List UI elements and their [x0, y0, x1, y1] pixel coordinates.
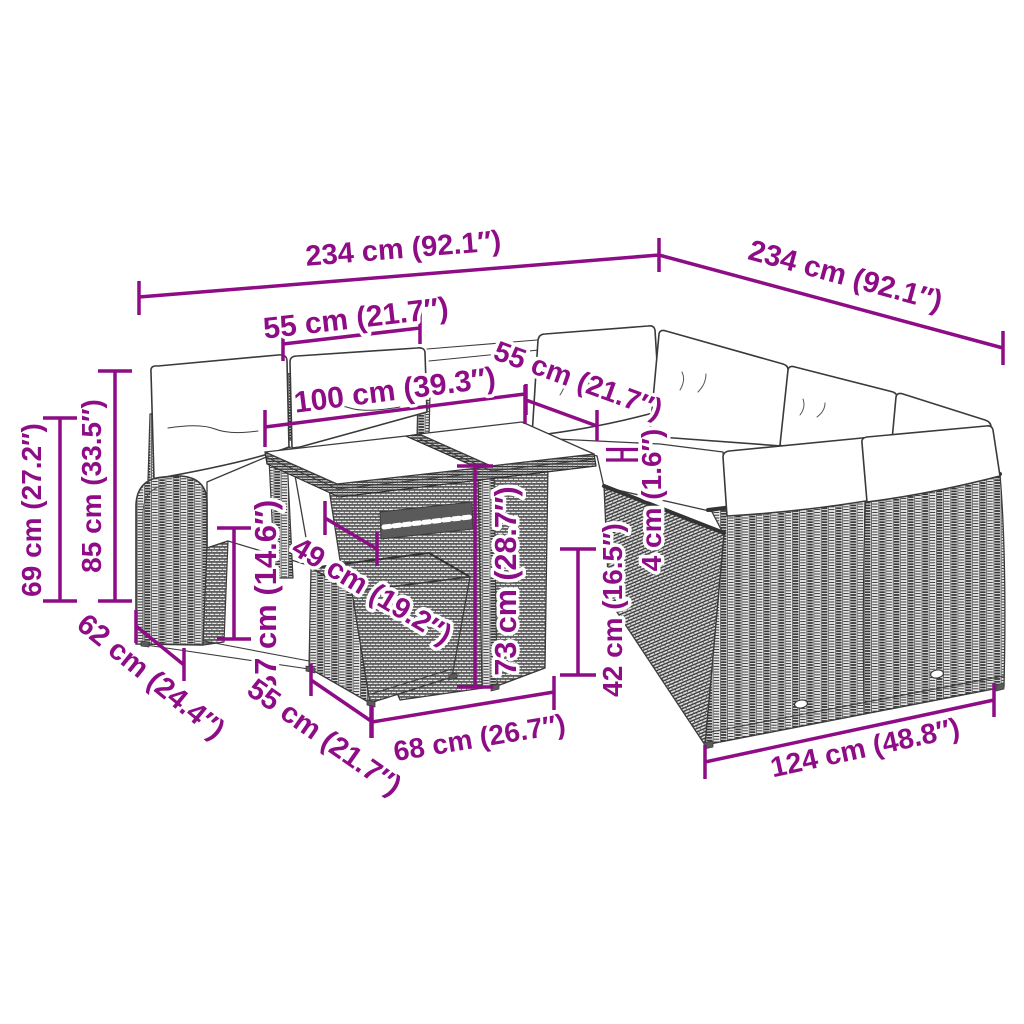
svg-text:37 cm (14.6″): 37 cm (14.6″) [248, 500, 283, 692]
svg-text:55 cm (21.7″): 55 cm (21.7″) [262, 291, 451, 345]
svg-text:4 cm (1.6″): 4 cm (1.6″) [636, 429, 667, 572]
svg-text:85 cm (33.5″): 85 cm (33.5″) [76, 399, 107, 573]
svg-text:68 cm (26.7″): 68 cm (26.7″) [391, 708, 567, 767]
svg-text:73 cm (28.7″): 73 cm (28.7″) [489, 486, 523, 675]
svg-text:234 cm (92.1″): 234 cm (92.1″) [304, 225, 502, 273]
svg-text:69 cm (27.2″): 69 cm (27.2″) [16, 423, 47, 597]
svg-text:42 cm (16.5″): 42 cm (16.5″) [597, 523, 628, 697]
